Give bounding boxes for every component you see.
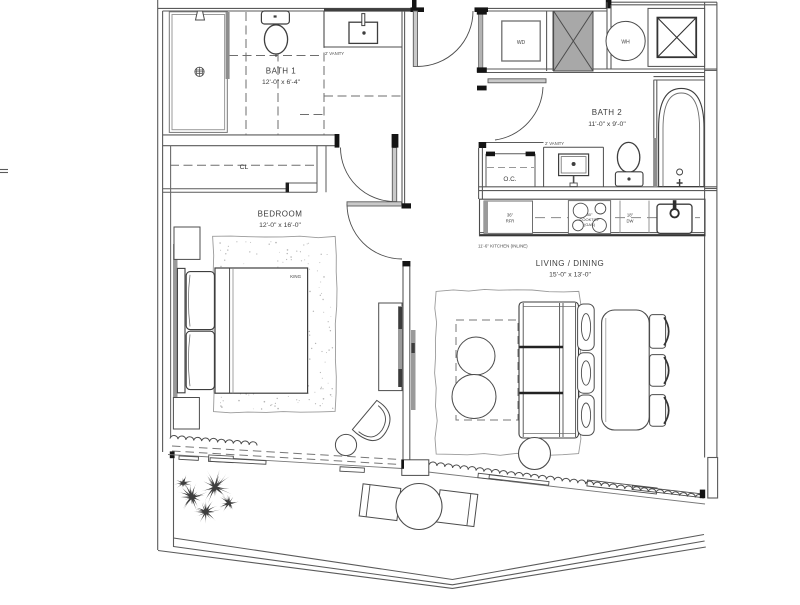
svg-text:36": 36" <box>507 212 514 217</box>
svg-text:15'-0" x 13'-0": 15'-0" x 13'-0" <box>549 272 591 279</box>
svg-text:RFR: RFR <box>506 218 515 223</box>
svg-text:12'-0" x 16'-0": 12'-0" x 16'-0" <box>259 222 301 229</box>
svg-text:WH: WH <box>621 40 630 46</box>
svg-text:LIVING / DINING: LIVING / DINING <box>536 259 604 268</box>
svg-text:(GAS): (GAS) <box>584 222 596 227</box>
svg-text:11'-0" x 9'-0": 11'-0" x 9'-0" <box>588 121 626 128</box>
svg-text:BATH 1: BATH 1 <box>266 67 296 76</box>
svg-text:11'-6" KITCHEN (INLINE): 11'-6" KITCHEN (INLINE) <box>478 244 528 249</box>
svg-text:18": 18" <box>627 212 634 217</box>
svg-text:2' VANITY: 2' VANITY <box>545 141 564 146</box>
svg-text:BEDROOM: BEDROOM <box>258 210 303 219</box>
svg-text:12'-0" x 6'-4": 12'-0" x 6'-4" <box>262 79 301 86</box>
svg-text:WD: WD <box>517 40 526 46</box>
svg-text:KING: KING <box>290 274 301 279</box>
svg-text:2' VANITY: 2' VANITY <box>325 51 344 56</box>
svg-text:BATH 2: BATH 2 <box>592 108 622 117</box>
svg-text:CL: CL <box>240 164 249 171</box>
svg-text:DW: DW <box>627 218 634 223</box>
svg-text:O.C.: O.C. <box>503 176 516 183</box>
